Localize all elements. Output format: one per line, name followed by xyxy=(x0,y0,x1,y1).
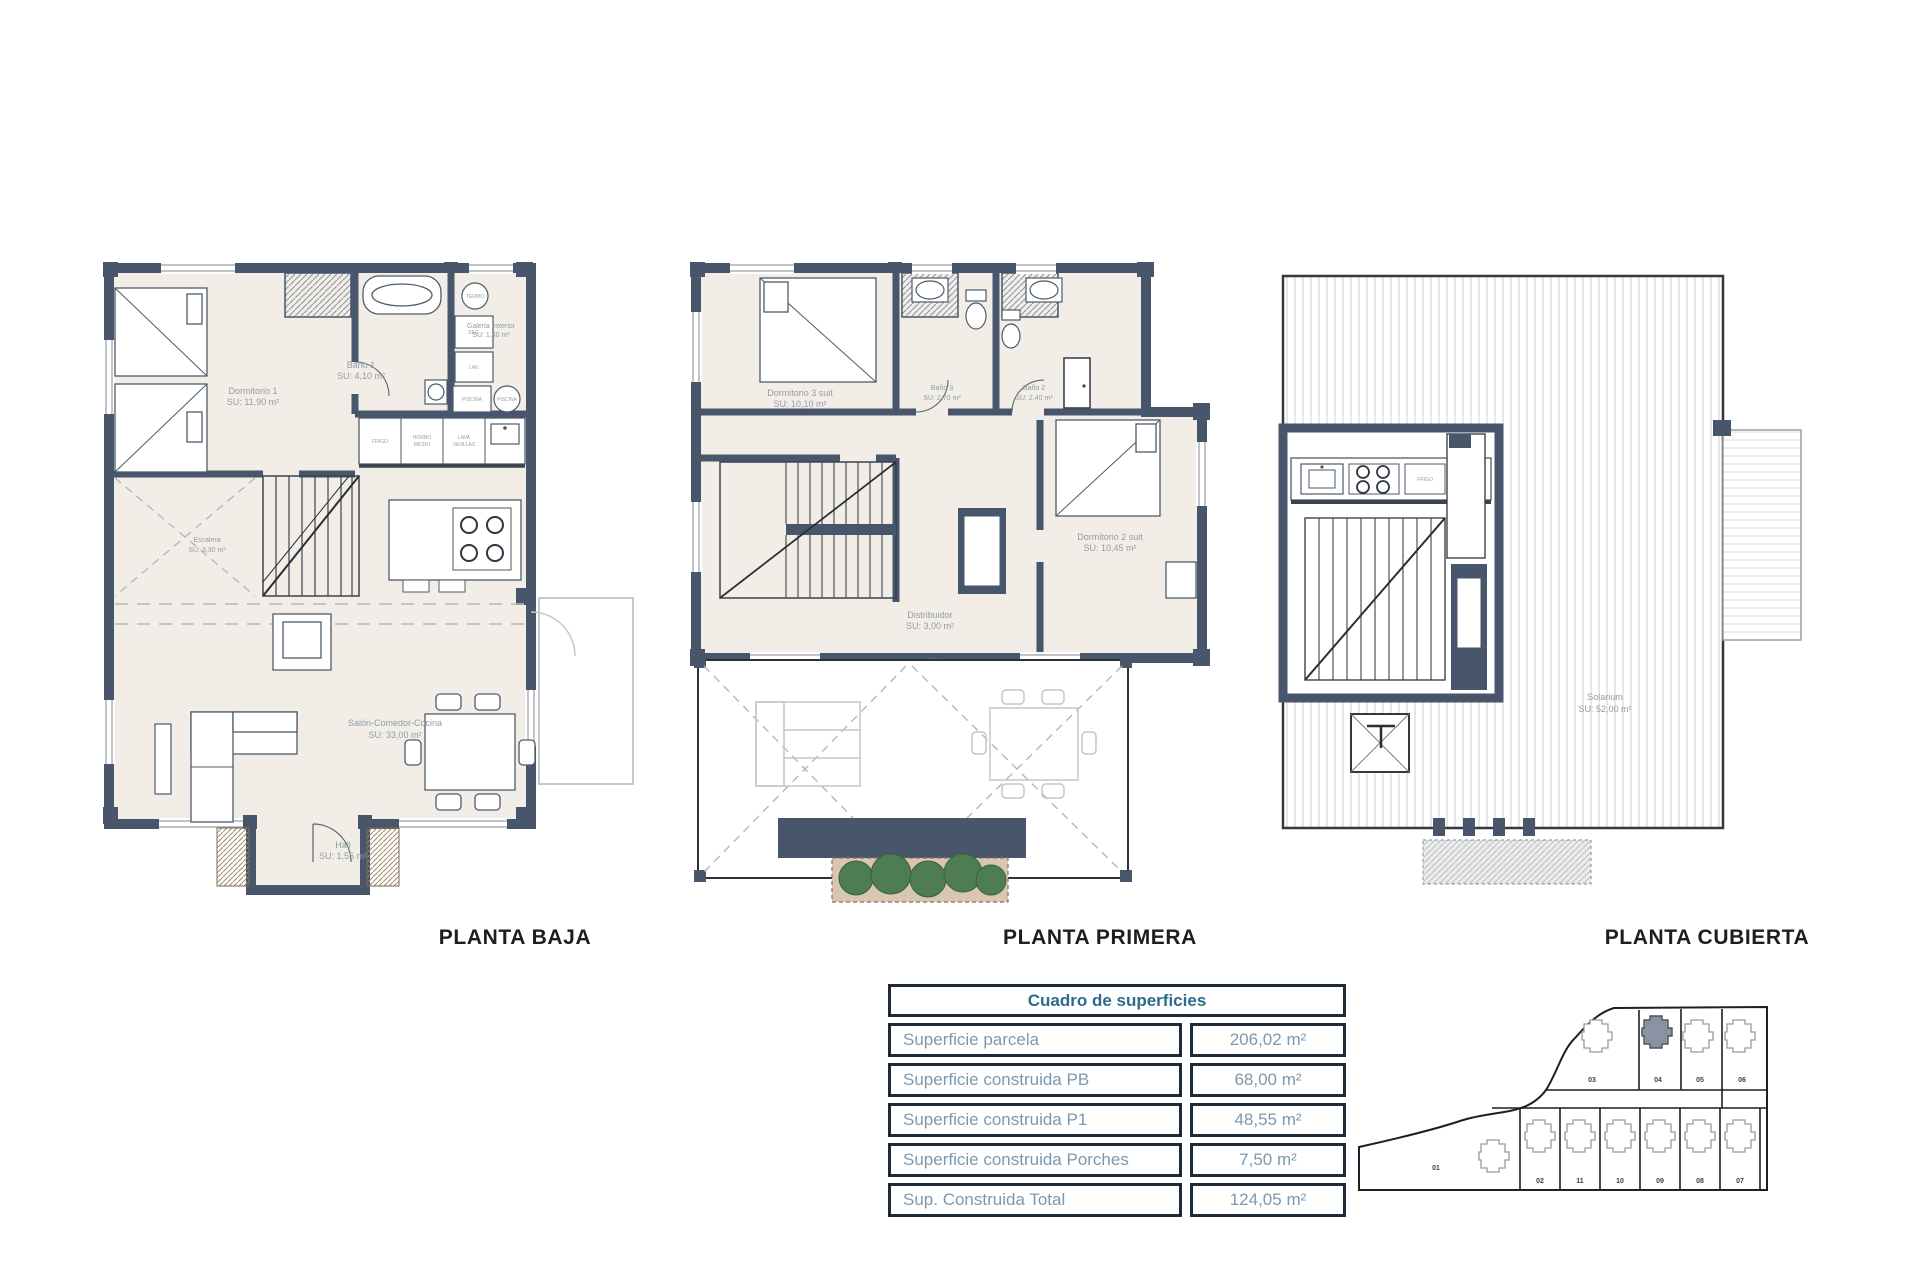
toilet-icon xyxy=(1002,310,1020,348)
plot-label: 05 xyxy=(1696,1077,1704,1084)
planter-icon xyxy=(1423,840,1591,884)
plot-label: 10 xyxy=(1616,1178,1624,1185)
bed-icon xyxy=(760,278,876,382)
plot-label: 06 xyxy=(1738,1077,1746,1084)
toilet-icon xyxy=(966,290,986,329)
room-area: SU: 2,40 m² xyxy=(1015,395,1053,402)
table-row: Superficie construida PB 68,00 m² xyxy=(888,1063,1346,1097)
horno-label: HORNO xyxy=(413,435,432,441)
armchair-icon xyxy=(273,614,331,670)
plot-label: 08 xyxy=(1696,1178,1704,1185)
wardrobe-icon xyxy=(285,273,351,317)
row-label: Superficie construida P1 xyxy=(888,1103,1182,1137)
room-area: SU: 2,70 m² xyxy=(923,395,961,402)
kitchen-island xyxy=(389,500,521,592)
table-row: Superficie construida Porches 7,50 m² xyxy=(888,1143,1346,1177)
porch-roof xyxy=(778,818,1026,858)
plan-title-baja: PLANTA BAJA xyxy=(400,926,630,950)
planta-primera-drawing: Dormitorio 3 suit SU: 10,10 m² Baño 3 SU… xyxy=(690,262,1210,905)
row-label: Superficie construida PB xyxy=(888,1063,1182,1097)
room-label: Baño 3 xyxy=(931,385,953,392)
side-terrace-outline xyxy=(1723,430,1801,640)
horno-label2: MICRO xyxy=(414,442,431,448)
piscina-label: PISCINA xyxy=(497,397,518,403)
row-value: 68,00 m² xyxy=(1190,1063,1346,1097)
planta-baja-drawing: TERMO SEC. LAV. PISCINA PISCINA FRIGO HO… xyxy=(103,262,637,905)
sink-icon xyxy=(1026,278,1062,302)
room-label: Baño 1 xyxy=(347,360,376,370)
highlighted-house xyxy=(1642,1016,1672,1048)
floorplan-sheet: TERMO SEC. LAV. PISCINA PISCINA FRIGO HO… xyxy=(0,0,1920,1280)
room-label: Distribuidor xyxy=(907,610,953,620)
planter-icon xyxy=(217,828,249,886)
frigo-label: FRIGO xyxy=(1417,477,1433,483)
row-label: Sup. Construida Total xyxy=(888,1183,1182,1217)
lavavajillas-label: LAVA xyxy=(458,435,471,441)
door-leaf xyxy=(1064,358,1090,408)
tv-cabinet-icon xyxy=(155,724,171,794)
planter-icon xyxy=(832,854,1008,902)
room-label: Solarium xyxy=(1587,692,1623,702)
stairs-icon xyxy=(1305,518,1445,680)
room-area: SU: 1,40 m² xyxy=(472,332,510,339)
sink-icon xyxy=(912,278,948,302)
plot-label: 03 xyxy=(1588,1077,1596,1084)
room-area: SU: 4,10 m² xyxy=(337,371,385,381)
room-label: Dormitorio 2 suit xyxy=(1077,532,1143,542)
plot-label: 07 xyxy=(1736,1178,1744,1185)
room-area: SU: 11,90 m² xyxy=(227,397,279,407)
room-label: Dormitorio 3 suit xyxy=(767,388,833,398)
sink-icon xyxy=(1301,464,1343,494)
room-area: SU: 3,30 m² xyxy=(188,547,226,554)
plot-label: 09 xyxy=(1656,1178,1664,1185)
stair-kitchen-block xyxy=(1283,428,1499,698)
room-label: Galería exterior xyxy=(467,323,516,330)
room-label: Dormitorio 1 xyxy=(228,386,277,396)
room-label: Baño 2 xyxy=(1023,385,1045,392)
piscina-label: PISCINA xyxy=(462,397,483,403)
plot-label: 04 xyxy=(1654,1077,1662,1084)
room-area: SU: 3,00 m² xyxy=(906,621,954,631)
row-value: 7,50 m² xyxy=(1190,1143,1346,1177)
surface-table-title: Cuadro de superficies xyxy=(888,984,1346,1017)
sink-icon xyxy=(425,380,447,404)
site-plan: 03 04 05 06 01 02 11 10 09 08 07 xyxy=(1358,1000,1810,1205)
termo-label: TERMO xyxy=(466,294,484,300)
room-area: SU: 33,00 m² xyxy=(368,730,421,740)
planta-cubierta-drawing: FRIGO Solarium SU: 52,00 m² xyxy=(1275,268,1805,905)
surface-table: Cuadro de superficies Superficie parcela… xyxy=(888,984,1346,1223)
table-row: Superficie construida P1 48,55 m² xyxy=(888,1103,1346,1137)
room-area: SU: 10,45 m² xyxy=(1083,543,1136,553)
table-row: Superficie parcela 206,02 m² xyxy=(888,1023,1346,1057)
wardrobe-column xyxy=(958,508,1006,594)
wall-pillar xyxy=(1713,420,1731,436)
shower-icon xyxy=(1351,714,1409,772)
row-label: Superficie construida Porches xyxy=(888,1143,1182,1177)
frigo-label: FRIGO xyxy=(372,439,388,445)
room-area: SU: 1,55 m² xyxy=(319,851,367,861)
table-row: Sup. Construida Total 124,05 m² xyxy=(888,1183,1346,1217)
plot-label: 01 xyxy=(1432,1165,1440,1172)
room-label: Hall xyxy=(335,840,351,850)
bathtub-icon xyxy=(363,276,441,314)
room-area: SU: 52,00 m² xyxy=(1578,704,1631,714)
lav-label: LAV. xyxy=(469,365,479,371)
plan-title-primera: PLANTA PRIMERA xyxy=(985,926,1215,950)
room-label: Salón-Comedor-Cocina xyxy=(348,718,442,728)
planter-icon xyxy=(367,828,399,886)
row-value: 206,02 m² xyxy=(1190,1023,1346,1057)
plan-title-cubierta: PLANTA CUBIERTA xyxy=(1577,926,1837,950)
room-area: SU: 10,10 m² xyxy=(773,399,826,409)
lavavajillas-label2: VAJILLAS xyxy=(453,442,476,448)
row-label: Superficie parcela xyxy=(888,1023,1182,1057)
plot-label: 02 xyxy=(1536,1178,1544,1185)
row-value: 124,05 m² xyxy=(1190,1183,1346,1217)
plot-label: 11 xyxy=(1576,1178,1584,1185)
row-value: 48,55 m² xyxy=(1190,1103,1346,1137)
room-label: Escalera xyxy=(193,537,220,544)
side-porch-outline xyxy=(539,598,633,784)
